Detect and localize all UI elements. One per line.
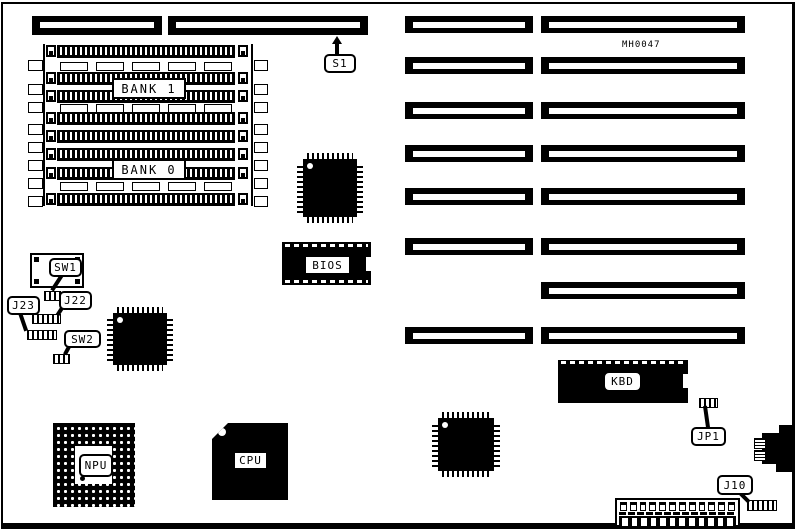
socket-latch bbox=[46, 72, 56, 84]
power-pins-bottom bbox=[619, 516, 736, 528]
capacitor bbox=[60, 104, 88, 113]
top-slot-2 bbox=[168, 16, 368, 35]
callout-sw1: SW1 bbox=[49, 258, 82, 277]
bank-edge-rail bbox=[43, 44, 45, 206]
edge-component bbox=[254, 196, 268, 207]
power-pin bbox=[669, 517, 677, 527]
isa-slot-long bbox=[541, 57, 745, 74]
power-pin bbox=[631, 517, 639, 527]
edge-component bbox=[28, 142, 43, 153]
socket-latch bbox=[46, 90, 56, 102]
bios-label: BIOS bbox=[312, 259, 343, 272]
jp1-jumper bbox=[699, 398, 718, 408]
capacitor bbox=[60, 62, 88, 71]
bios-label-box: BIOS bbox=[305, 256, 350, 274]
qfp-pins bbox=[167, 317, 173, 361]
qfp-pins bbox=[307, 217, 353, 223]
sw2-label: SW2 bbox=[71, 333, 94, 346]
socket-latch bbox=[46, 193, 56, 205]
power-connector bbox=[615, 498, 740, 527]
power-pin bbox=[678, 517, 686, 527]
socket-latch bbox=[46, 112, 56, 124]
isa-slot-short bbox=[405, 16, 533, 33]
socket-dash bbox=[561, 361, 685, 364]
motherboard-diagram: S1 BANK 1 BANK 0 MH0047 BIOS SW1 J22 bbox=[0, 0, 797, 531]
pin1-dot-icon bbox=[80, 476, 85, 481]
cpu-label: CPU bbox=[239, 454, 262, 467]
qfp-chip-upper bbox=[297, 153, 363, 223]
capacitor bbox=[132, 182, 160, 191]
power-pin bbox=[669, 502, 676, 511]
capacitor bbox=[96, 104, 124, 113]
socket-latch bbox=[46, 45, 56, 57]
callout-j10: J10 bbox=[717, 475, 753, 495]
socket-latch bbox=[46, 130, 56, 142]
qfp-pins bbox=[442, 471, 490, 477]
npu-label: NPU bbox=[85, 459, 108, 472]
isa-slot-short bbox=[405, 327, 533, 344]
edge-component bbox=[254, 84, 268, 95]
power-pin bbox=[698, 517, 706, 527]
capacitor bbox=[168, 62, 196, 71]
qfp-pins bbox=[494, 422, 500, 467]
capacitor bbox=[168, 182, 196, 191]
power-pin bbox=[718, 502, 725, 511]
power-pins-top bbox=[617, 500, 738, 512]
isa-slot-short bbox=[405, 145, 533, 162]
jp1-label: JP1 bbox=[697, 430, 720, 443]
power-divider bbox=[619, 512, 736, 515]
power-pin bbox=[708, 502, 715, 511]
edge-component bbox=[28, 124, 43, 135]
bank0-label-box: BANK 0 bbox=[112, 159, 186, 180]
sw2-header bbox=[53, 354, 70, 364]
edge-component bbox=[254, 60, 268, 71]
keyboard-din-connector bbox=[776, 464, 792, 472]
isa-slot-short bbox=[405, 238, 533, 255]
isa-slot-long bbox=[541, 145, 745, 162]
capacitor bbox=[96, 62, 124, 71]
socket-latch bbox=[238, 193, 248, 205]
power-pin bbox=[649, 502, 656, 511]
bios-chip: BIOS bbox=[282, 242, 371, 285]
keyboard-din-connector bbox=[762, 433, 792, 464]
edge-component bbox=[28, 178, 43, 189]
power-pin bbox=[640, 502, 647, 511]
j23-label: J23 bbox=[12, 299, 35, 312]
kbd-label: KBD bbox=[611, 375, 634, 388]
capacitor bbox=[132, 62, 160, 71]
capacitor bbox=[204, 62, 232, 71]
dram-socket-row bbox=[57, 45, 235, 58]
pin1-dot-icon bbox=[307, 163, 313, 169]
isa-slot-long bbox=[541, 102, 745, 119]
j22-label: J22 bbox=[64, 294, 87, 307]
socket-latch bbox=[238, 167, 248, 179]
power-pin bbox=[621, 517, 629, 527]
top-slot-1 bbox=[32, 16, 162, 35]
callout-j23: J23 bbox=[7, 296, 40, 315]
j22-header bbox=[32, 314, 61, 324]
isa-slot-long bbox=[541, 238, 745, 255]
dram-socket-row bbox=[57, 193, 235, 206]
part-number: MH0047 bbox=[622, 40, 661, 50]
edge-component bbox=[254, 142, 268, 153]
capacitor bbox=[60, 182, 88, 191]
kbd-controller-chip: KBD bbox=[558, 360, 688, 403]
j23-header bbox=[27, 330, 57, 340]
pin1-dot-icon bbox=[442, 422, 448, 428]
capacitor bbox=[132, 104, 160, 113]
qfp-pins bbox=[357, 163, 363, 213]
cpu-chip: CPU bbox=[212, 423, 288, 500]
edge-component bbox=[254, 124, 268, 135]
kbd-label-box: KBD bbox=[604, 372, 641, 391]
power-pin bbox=[699, 502, 706, 511]
qfp-pins bbox=[117, 365, 163, 371]
sw1-label: SW1 bbox=[54, 261, 77, 274]
npu-socket: NPU bbox=[53, 423, 135, 507]
qfp-chip-left bbox=[107, 307, 173, 371]
power-pin bbox=[630, 502, 637, 511]
power-pin bbox=[659, 502, 666, 511]
isa-slot-short bbox=[405, 102, 533, 119]
edge-component bbox=[28, 84, 43, 95]
edge-component bbox=[28, 102, 43, 113]
power-pin bbox=[688, 517, 696, 527]
j10-label: J10 bbox=[724, 479, 747, 492]
callout-s1: S1 bbox=[324, 54, 356, 73]
bank0-label: BANK 0 bbox=[121, 163, 176, 177]
din-pin-block bbox=[754, 438, 766, 449]
power-pin bbox=[650, 517, 658, 527]
chip-notch bbox=[683, 374, 688, 388]
isa-slot-long bbox=[541, 16, 745, 33]
socket-latch bbox=[238, 72, 248, 84]
edge-component bbox=[28, 196, 43, 207]
edge-component bbox=[28, 60, 43, 71]
power-pin bbox=[679, 502, 686, 511]
socket-latch bbox=[238, 148, 248, 160]
power-pin bbox=[659, 517, 667, 527]
capacitor bbox=[204, 182, 232, 191]
s1-label: S1 bbox=[332, 57, 347, 70]
power-pin bbox=[707, 517, 715, 527]
power-pin bbox=[717, 517, 725, 527]
capacitor bbox=[96, 182, 124, 191]
isa-slot-long bbox=[541, 282, 745, 299]
callout-j22: J22 bbox=[59, 291, 92, 310]
callout-jp1: JP1 bbox=[691, 427, 726, 446]
j10-header bbox=[747, 500, 777, 511]
isa-slot-long bbox=[541, 188, 745, 205]
socket-dash bbox=[285, 244, 368, 247]
edge-component bbox=[28, 160, 43, 171]
socket-latch bbox=[238, 112, 248, 124]
edge-component bbox=[254, 160, 268, 171]
power-pin bbox=[728, 502, 735, 511]
edge-component bbox=[254, 102, 268, 113]
socket-dash bbox=[285, 280, 368, 283]
isa-slot-long bbox=[541, 327, 745, 344]
cpu-label-box: CPU bbox=[234, 452, 267, 469]
edge-component bbox=[254, 178, 268, 189]
power-pin bbox=[640, 517, 648, 527]
socket-latch bbox=[46, 167, 56, 179]
din-pin-block bbox=[754, 450, 766, 461]
dram-socket-row bbox=[57, 112, 235, 125]
capacitor bbox=[168, 104, 196, 113]
bank-edge-rail bbox=[251, 44, 253, 206]
npu-label-box: NPU bbox=[79, 454, 113, 477]
dram-socket-row bbox=[57, 130, 235, 143]
isa-slot-short bbox=[405, 188, 533, 205]
power-pin bbox=[689, 502, 696, 511]
socket-latch bbox=[46, 148, 56, 160]
socket-latch bbox=[238, 90, 248, 102]
bank1-label-box: BANK 1 bbox=[112, 78, 186, 99]
chip-notch bbox=[366, 257, 371, 271]
bank1-label: BANK 1 bbox=[121, 82, 176, 96]
pin1-dot-icon bbox=[117, 317, 123, 323]
qfp-chip-lower bbox=[432, 412, 500, 477]
callout-sw2: SW2 bbox=[64, 330, 101, 348]
socket-latch bbox=[238, 45, 248, 57]
capacitor bbox=[204, 104, 232, 113]
isa-slot-short bbox=[405, 57, 533, 74]
socket-latch bbox=[238, 130, 248, 142]
power-pin bbox=[620, 502, 627, 511]
power-pin bbox=[726, 517, 734, 527]
